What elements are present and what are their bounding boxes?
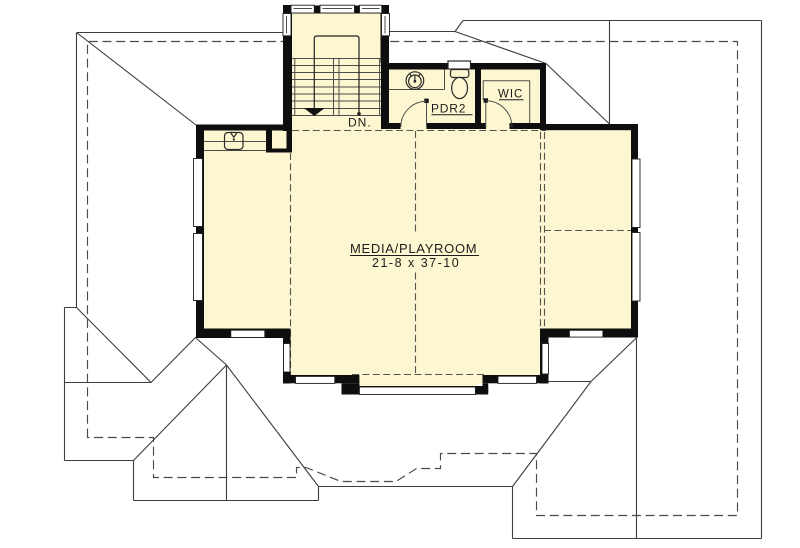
svg-text:21-8 x 37-10: 21-8 x 37-10: [372, 256, 460, 270]
svg-text:WIC: WIC: [498, 89, 523, 101]
svg-text:DN.: DN.: [348, 116, 372, 130]
svg-text:MEDIA/PLAYROOM: MEDIA/PLAYROOM: [350, 241, 477, 256]
svg-text:PDR2: PDR2: [431, 102, 466, 116]
